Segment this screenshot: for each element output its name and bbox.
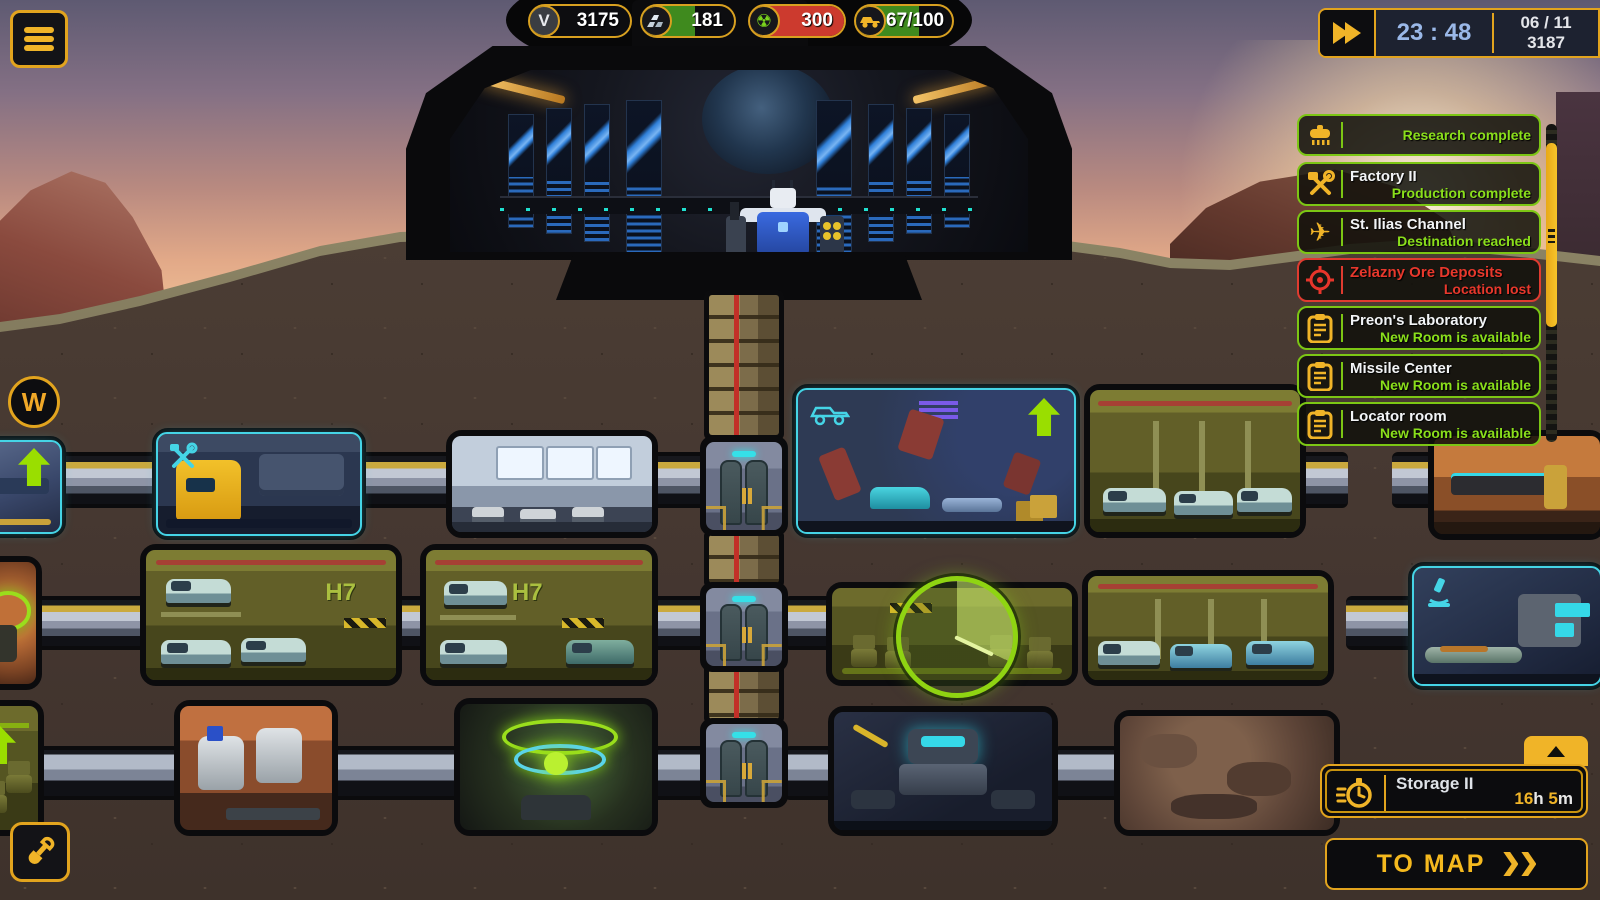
room-lab-partial-left[interactable] bbox=[0, 436, 66, 538]
room-vehicle-factory[interactable] bbox=[792, 384, 1080, 538]
notifications-scrollbar-thumb[interactable] bbox=[1546, 143, 1557, 327]
clipboard-icon bbox=[1299, 361, 1341, 391]
elevator-room[interactable] bbox=[700, 718, 788, 808]
notification-missile-center[interactable]: Missile CenterNew Room is available bbox=[1297, 354, 1541, 398]
ingots-icon bbox=[640, 5, 672, 37]
ingots-value: 181 bbox=[672, 10, 734, 32]
notification-factory[interactable]: Factory IIProduction complete bbox=[1297, 162, 1541, 206]
game-screen: H7 H7 bbox=[0, 0, 1600, 900]
room-canteen[interactable] bbox=[446, 430, 658, 538]
build-queue-title: Storage II bbox=[1396, 774, 1473, 794]
room-power-plant[interactable] bbox=[828, 706, 1058, 836]
notification-preons-laboratory[interactable]: Preon's LaboratoryNew Room is available bbox=[1297, 306, 1541, 350]
vehicle-icon bbox=[810, 400, 850, 426]
production-timer-overlay bbox=[896, 576, 1018, 698]
clipboard-icon bbox=[1299, 409, 1341, 439]
resource-credits[interactable]: V 3175 bbox=[528, 4, 632, 38]
room-garage-lower-right[interactable] bbox=[1082, 570, 1334, 686]
corridor bbox=[60, 452, 158, 508]
room-generators[interactable] bbox=[174, 700, 338, 836]
eagle-banner bbox=[546, 108, 572, 234]
to-map-button[interactable]: TO MAP bbox=[1325, 838, 1588, 890]
radiation-icon: ☢ bbox=[748, 5, 780, 37]
eagle-banner bbox=[906, 108, 932, 234]
clock-panel: 23 : 48 06 / 113187 bbox=[1318, 8, 1600, 58]
resource-uranium[interactable]: ☢ 300 bbox=[748, 4, 846, 38]
fast-forward-button[interactable] bbox=[1320, 10, 1376, 56]
eagle-banner bbox=[868, 104, 894, 242]
corridor bbox=[650, 452, 706, 508]
build-queue-time: 16h 5m bbox=[1514, 789, 1573, 809]
room-garage-h7-b[interactable]: H7 bbox=[420, 544, 658, 686]
corridor bbox=[38, 746, 180, 800]
room-excavated-cave[interactable] bbox=[1114, 710, 1340, 836]
notification-channel[interactable]: ✈ St. Ilias ChannelDestination reached bbox=[1297, 210, 1541, 254]
plane-icon: ✈ bbox=[1299, 219, 1341, 245]
room-workshop[interactable] bbox=[152, 428, 366, 540]
notification-ore-deposits[interactable]: Zelazny Ore DepositsLocation lost bbox=[1297, 258, 1541, 302]
eagle-banner bbox=[584, 104, 610, 242]
vehicles-value: 67/100 bbox=[886, 10, 954, 32]
waypoint-label: W bbox=[22, 387, 47, 418]
corridor bbox=[650, 596, 706, 650]
room-centrifuge[interactable] bbox=[454, 698, 658, 836]
fast-forward-icon bbox=[1333, 22, 1361, 44]
room-garage-h7-a[interactable]: H7 bbox=[140, 544, 402, 686]
resource-ingots[interactable]: 181 bbox=[640, 4, 736, 38]
elevator-shaft bbox=[704, 290, 784, 440]
corridor bbox=[652, 746, 706, 800]
room-storage-partial-left[interactable] bbox=[0, 700, 44, 836]
credits-value: 3175 bbox=[560, 10, 630, 32]
uranium-value: 300 bbox=[780, 10, 844, 32]
room-centrifuge-partial-left[interactable] bbox=[0, 556, 42, 690]
elevator-shaft bbox=[704, 664, 784, 724]
target-icon bbox=[1299, 265, 1341, 295]
research-icon bbox=[1299, 123, 1341, 147]
corridor bbox=[1346, 596, 1414, 650]
hamburger-icon bbox=[24, 27, 54, 51]
collapse-arrow-icon bbox=[1547, 737, 1565, 757]
corridor bbox=[784, 746, 834, 800]
workshop-tools-icon bbox=[168, 442, 198, 472]
wall-marking-h7: H7 bbox=[512, 579, 543, 607]
collapse-queue-tab[interactable] bbox=[1524, 736, 1588, 766]
corridor bbox=[356, 452, 454, 508]
notification-locator-room[interactable]: Locator roomNew Room is available bbox=[1297, 402, 1541, 446]
double-chevron-icon bbox=[1503, 852, 1536, 876]
resource-vehicles[interactable]: 67/100 bbox=[854, 4, 954, 38]
room-research-lab[interactable] bbox=[1408, 562, 1600, 690]
tools-icon bbox=[1299, 169, 1341, 199]
room-garage-upper[interactable] bbox=[1084, 384, 1306, 538]
shovel-icon bbox=[23, 835, 57, 869]
menu-button[interactable] bbox=[10, 10, 68, 68]
planet-window bbox=[702, 64, 834, 174]
corridor bbox=[784, 596, 832, 650]
dome-interior bbox=[450, 70, 1028, 252]
stopwatch-icon bbox=[1336, 776, 1374, 815]
wall-marking-h7: H7 bbox=[325, 579, 356, 607]
clipboard-icon bbox=[1299, 313, 1341, 343]
waypoint-button[interactable]: W bbox=[8, 376, 60, 428]
command-center-dome[interactable] bbox=[406, 0, 1072, 300]
game-time: 23 : 48 bbox=[1376, 19, 1492, 47]
microscope-icon bbox=[1424, 576, 1454, 608]
elevator-room[interactable] bbox=[700, 436, 788, 536]
eagle-banner bbox=[626, 100, 662, 254]
corridor bbox=[332, 746, 460, 800]
corridor bbox=[36, 596, 146, 650]
elevator-shaft bbox=[704, 530, 784, 588]
dig-button[interactable] bbox=[10, 822, 70, 882]
corridor bbox=[1054, 746, 1120, 800]
room-comms-partial-right[interactable] bbox=[1428, 430, 1600, 540]
notifications-scrollbar-track[interactable] bbox=[1546, 124, 1557, 442]
credits-icon: V bbox=[538, 11, 549, 31]
notification-research[interactable]: Research complete bbox=[1297, 114, 1541, 156]
panel-divider bbox=[1384, 775, 1386, 811]
elevator-room[interactable] bbox=[700, 582, 788, 672]
build-queue-panel[interactable]: Storage II 16h 5m bbox=[1320, 764, 1588, 818]
to-map-label: TO MAP bbox=[1377, 850, 1486, 879]
game-date: 06 / 113187 bbox=[1492, 13, 1598, 52]
vehicles-icon bbox=[854, 5, 886, 37]
